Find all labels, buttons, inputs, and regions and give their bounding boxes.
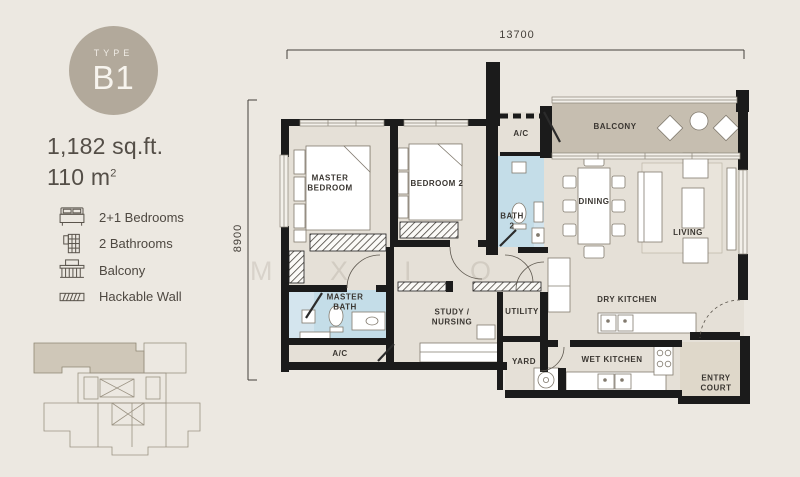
hackable-wall-icon: [55, 285, 89, 309]
room-label-bath2: BATH 2: [497, 212, 527, 233]
feature-balcony: Balcony: [55, 257, 184, 284]
balcony-floor: [552, 101, 740, 155]
room-label-living: LIVING: [673, 228, 703, 238]
coffee-table: [682, 188, 704, 228]
feature-label: Balcony: [99, 263, 145, 278]
room-label-study-nursing: STUDY / NURSING: [425, 308, 479, 329]
feature-list: 2+1 Bedrooms 2 Bathrooms Balco: [55, 204, 184, 310]
room-label-dining: DINING: [579, 197, 610, 207]
bed-icon: [55, 205, 89, 229]
type-label: TYPE: [94, 48, 134, 58]
balcony-icon: [55, 258, 89, 282]
room-label-utility: UTILITY: [505, 307, 539, 317]
room-label-master-bedroom: MASTER BEDROOM: [301, 174, 359, 195]
floorplan-page: TYPE B1 1,182 sq.ft. 110 m2 2+1 Bedrooms…: [0, 0, 800, 477]
room-label-ac-bottom: A/C: [332, 349, 347, 359]
dimension-height: 8900: [232, 208, 244, 268]
feature-hackable-wall: Hackable Wall: [55, 284, 184, 311]
feature-label: 2 Bathrooms: [99, 236, 173, 251]
room-label-yard: YARD: [512, 357, 536, 367]
feature-label: Hackable Wall: [99, 289, 182, 304]
stove: [654, 346, 673, 375]
wardrobe-master: [310, 234, 386, 251]
study-desk: [420, 343, 502, 362]
room-label-entry-court: ENTRY COURT: [696, 374, 736, 395]
dimension-width: 13700: [487, 29, 547, 41]
balcony-table: [690, 112, 708, 130]
room-label-ac-top: A/C: [513, 129, 528, 139]
key-plan-highlighted-unit: [34, 343, 144, 373]
feature-label: 2+1 Bedrooms: [99, 210, 184, 225]
unit-area: 1,182 sq.ft. 110 m2: [47, 131, 163, 193]
sofa: [638, 172, 662, 242]
wardrobe-bedroom2: [400, 222, 458, 238]
feature-bedrooms: 2+1 Bedrooms: [55, 204, 184, 231]
type-code: B1: [92, 61, 134, 94]
room-label-bedroom2: BEDROOM 2: [409, 179, 465, 189]
room-label-wet-kitchen: WET KITCHEN: [581, 355, 642, 365]
area-m2: 110 m2: [47, 162, 163, 193]
room-label-balcony: BALCONY: [593, 122, 636, 132]
shear-wall-stub: [486, 62, 500, 126]
room-label-dry-kitchen: DRY KITCHEN: [597, 295, 657, 305]
room-label-master-bath: MASTER BATH: [322, 293, 368, 314]
area-sqft: 1,182 sq.ft.: [47, 131, 163, 162]
type-badge: TYPE B1: [69, 26, 158, 115]
feature-bathrooms: 2 Bathrooms: [55, 231, 184, 258]
key-plan: [34, 343, 200, 455]
bathrooms-icon: [55, 232, 89, 256]
